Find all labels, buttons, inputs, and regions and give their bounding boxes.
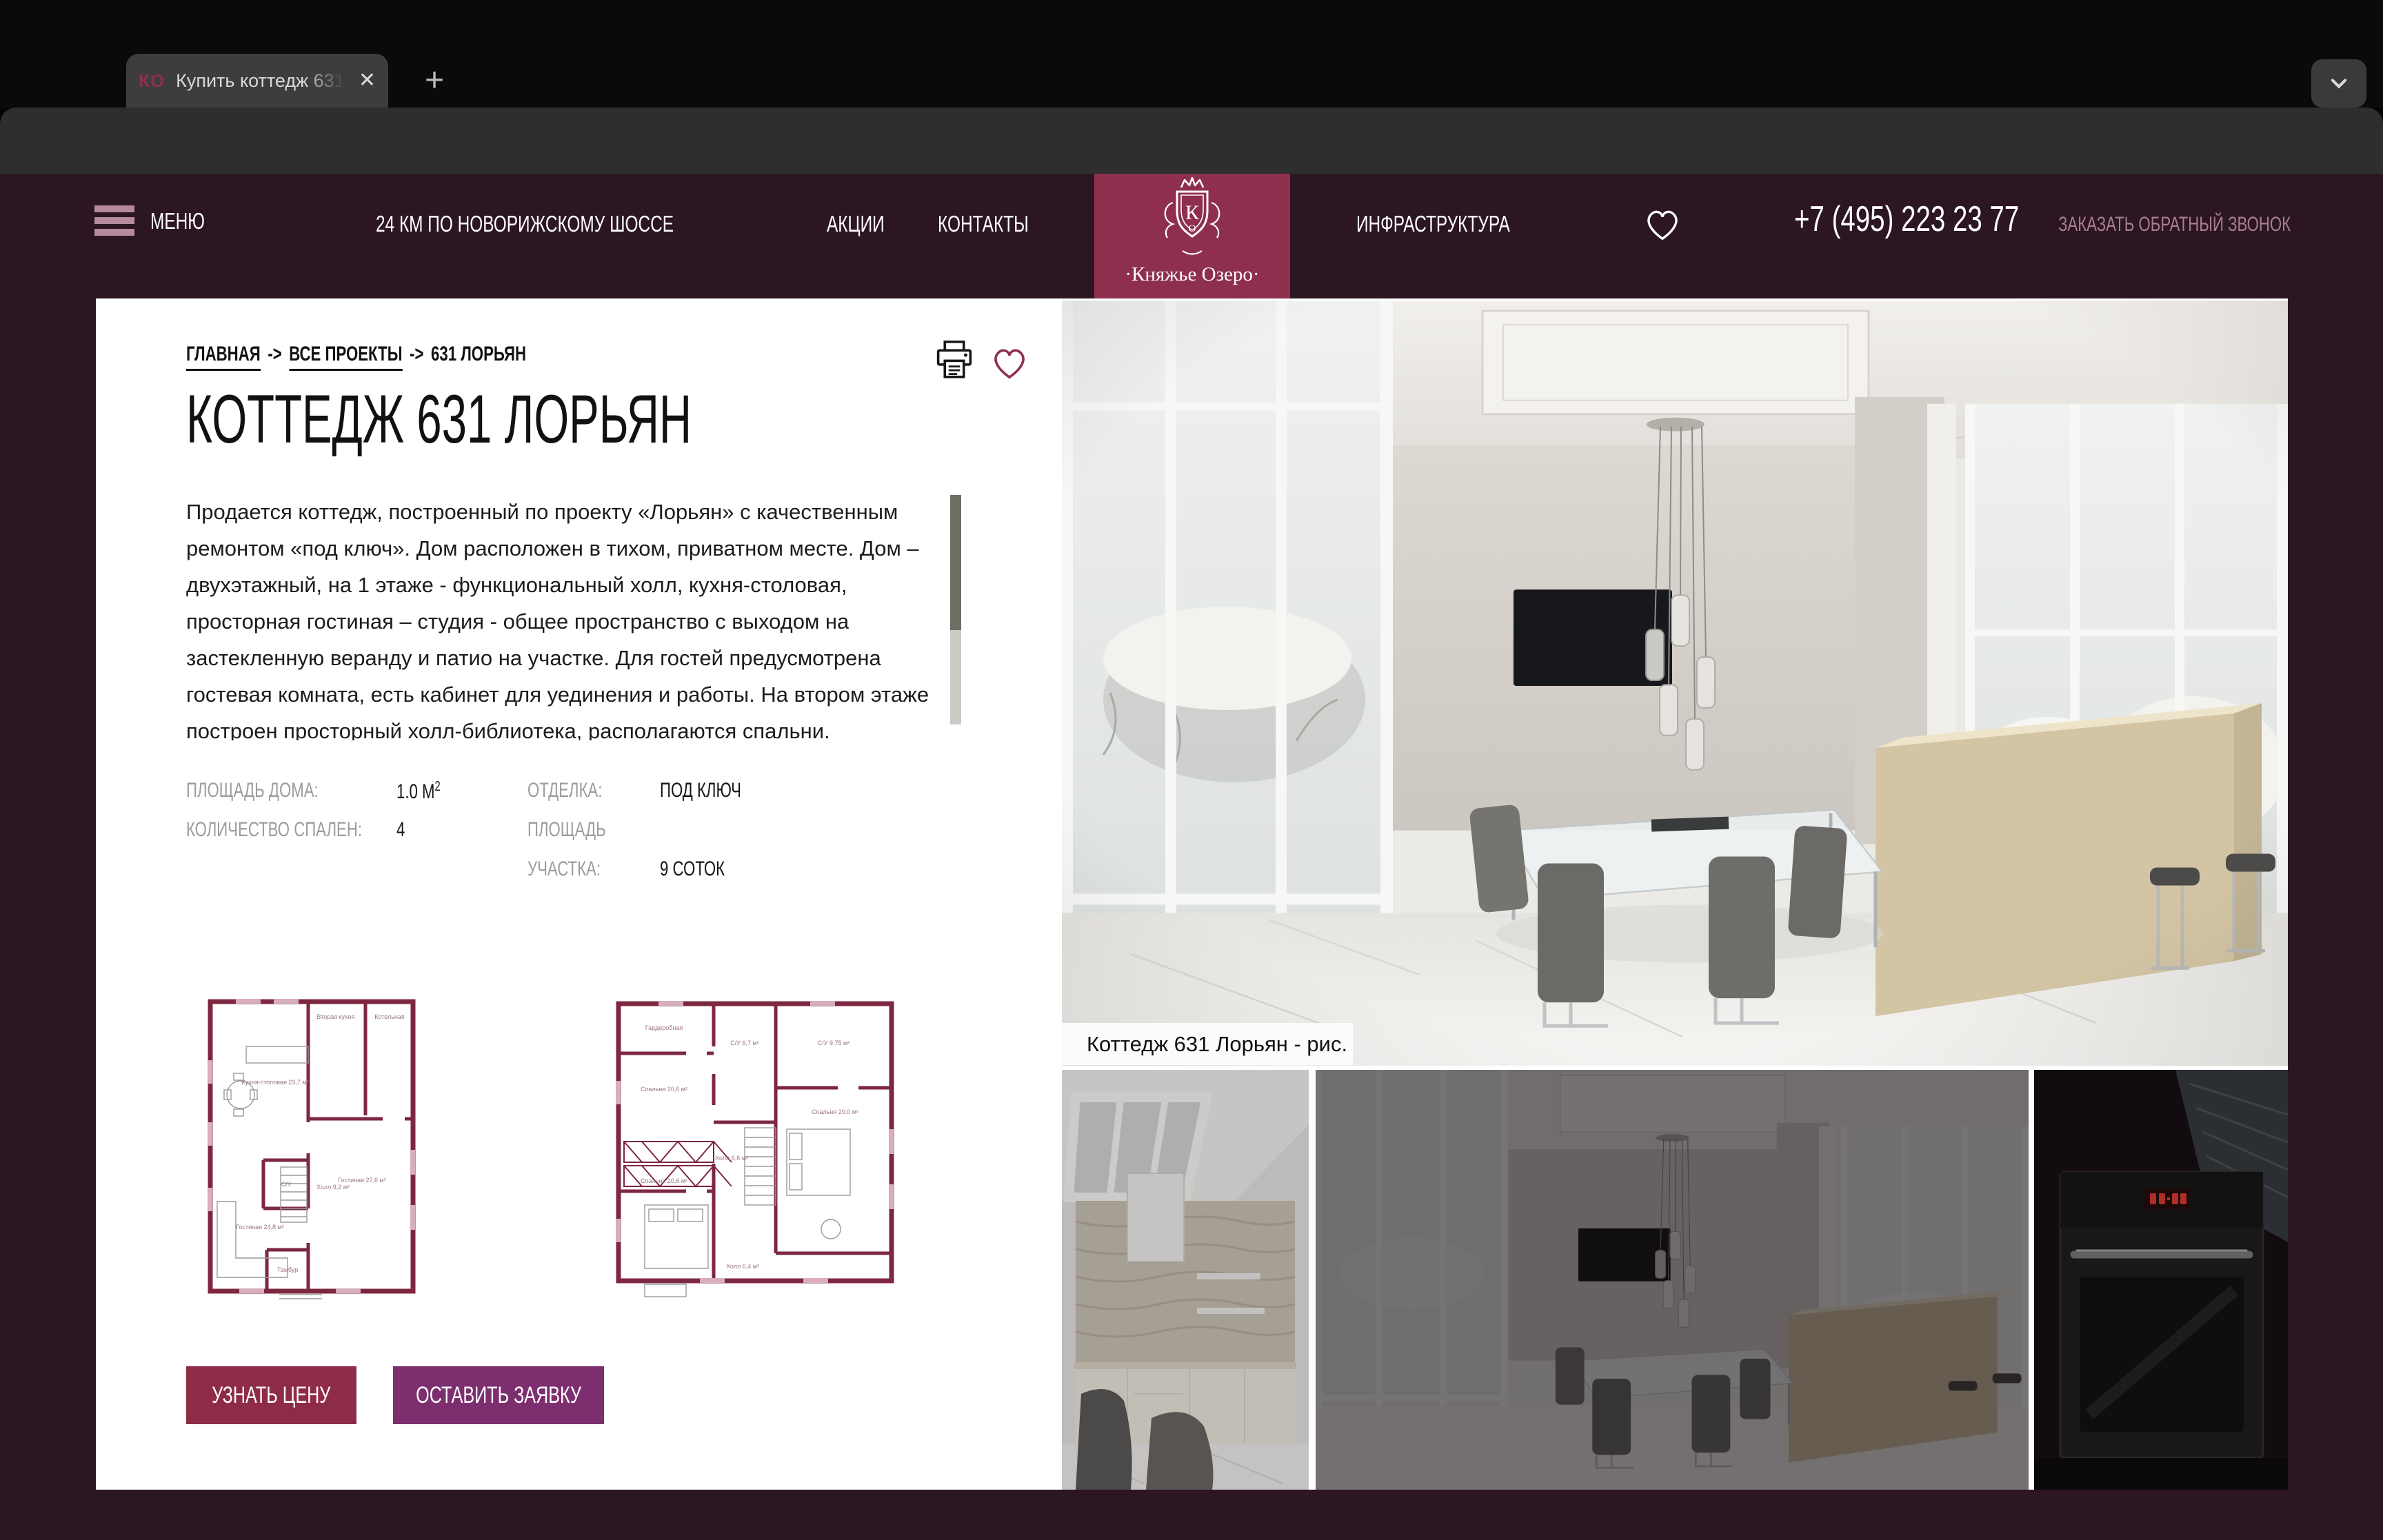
chevron-down-icon: [2324, 68, 2354, 99]
spec-area-label: ПЛОЩАДЬ ДОМА:: [186, 779, 365, 802]
svg-text:С/У 6,7 м²: С/У 6,7 м²: [730, 1040, 758, 1046]
leave-request-button[interactable]: ОСТАВИТЬ ЗАЯВКУ: [393, 1366, 604, 1424]
spec-bedrooms-label: КОЛИЧЕСТВО СПАЛЕН:: [186, 818, 424, 842]
get-price-button[interactable]: УЗНАТЬ ЦЕНУ: [186, 1366, 356, 1424]
site-logo[interactable]: К О ·Княжье Озеро·: [1094, 174, 1290, 302]
floor-plan-1[interactable]: Вторая кухня Котельная Кухня-столовая 23…: [198, 981, 425, 1302]
breadcrumb-current: 631 ЛОРЬЯН: [431, 343, 526, 365]
print-icon[interactable]: [932, 337, 977, 383]
svg-text:Гостиная 24,8 м²: Гостиная 24,8 м²: [236, 1224, 283, 1230]
svg-text:О: О: [1189, 223, 1196, 234]
svg-text:Спальня 20,0 м²: Спальня 20,0 м²: [812, 1108, 858, 1115]
svg-text:Холл 6,6 м²: Холл 6,6 м²: [715, 1155, 748, 1162]
distance-label: 24 КМ ПО НОВОРИЖСКОМУ ШОССЕ: [376, 211, 778, 237]
tab-close-icon[interactable]: ✕: [359, 70, 376, 91]
svg-text:Котельная: Котельная: [374, 1013, 405, 1020]
photo-caption: Коттедж 631 Лорьян - рис. 19: [1062, 1023, 1353, 1065]
svg-text:Гостиная 27,6 м²: Гостиная 27,6 м²: [338, 1177, 385, 1184]
menu-hamburger-icon[interactable]: [94, 205, 134, 236]
menu-button[interactable]: МЕНЮ: [150, 208, 224, 234]
logo-name: ·Княжье Озеро·: [1125, 263, 1259, 286]
breadcrumb: ГЛАВНАЯ -> ВСЕ ПРОЕКТЫ -> 631 ЛОРЬЯН: [186, 343, 645, 366]
floor-plan-2[interactable]: Гардеробная С/У 6,7 м² С/У 9,75 м² Спаль…: [603, 957, 908, 1313]
svg-text:С/У 9,75 м²: С/У 9,75 м²: [818, 1040, 849, 1046]
gallery-thumb-oven[interactable]: [2034, 1070, 2288, 1490]
page-title: КОТТЕДЖ 631 ЛОРЬЯН: [186, 380, 952, 458]
favorites-heart-icon[interactable]: [1641, 203, 1684, 243]
header-phone[interactable]: +7 (495) 223 23 77: [1794, 199, 2098, 240]
svg-text:Спальня 20,6 м²: Спальня 20,6 м²: [641, 1086, 687, 1093]
breadcrumb-home[interactable]: ГЛАВНАЯ: [186, 343, 261, 371]
svg-text:Холл 9,2 м²: Холл 9,2 м²: [316, 1184, 350, 1191]
gallery-thumb-kitchen[interactable]: [1062, 1070, 1309, 1490]
tab-search-button[interactable]: [2311, 59, 2366, 108]
new-tab-button[interactable]: +: [412, 58, 456, 102]
thumb-dim-overlay: [2034, 1070, 2288, 1490]
browser-tab[interactable]: КО Купить коттедж 631 Лорьян ✕: [126, 54, 388, 108]
spec-plot-label-line2: УЧАСТКА:: [527, 858, 626, 881]
main-photo[interactable]: [1062, 301, 2288, 1066]
nav-infrastructure[interactable]: ИНФРАСТРУКТУРА: [1356, 211, 1564, 237]
scrollbar-thumb[interactable]: [950, 495, 961, 630]
breadcrumb-separator: ->: [407, 343, 427, 365]
spec-area-value: 1.0 М2: [396, 779, 456, 804]
add-favorite-heart-icon[interactable]: [988, 341, 1031, 381]
spec-plot-label-line1: ПЛОЩАДЬ: [527, 818, 634, 842]
breadcrumb-separator: ->: [265, 343, 285, 365]
svg-text:Вторая кухня: Вторая кухня: [317, 1013, 355, 1020]
breadcrumb-projects[interactable]: ВСЕ ПРОЕКТЫ: [289, 343, 402, 371]
spec-finish-value: ПОД КЛЮЧ: [660, 779, 770, 802]
svg-text:Гардеробная: Гардеробная: [645, 1024, 683, 1031]
tab-title-wrap: Купить коттедж 631 Лорьян: [176, 67, 344, 94]
tab-title-fade: [303, 67, 344, 94]
description-text[interactable]: Продается коттедж, построенный по проект…: [186, 494, 940, 740]
content-card: ГЛАВНАЯ -> ВСЕ ПРОЕКТЫ -> 631 ЛОРЬЯН КОТ…: [96, 298, 2288, 1490]
thumb-dim-overlay: [1062, 1070, 1309, 1490]
svg-text:Тамбур: Тамбур: [277, 1266, 299, 1273]
browser-toolbar: https://www.kn-ozero.ru/projects/108/: [0, 108, 2383, 174]
callback-link[interactable]: ЗАКАЗАТЬ ОБРАТНЫЙ ЗВОНОК: [2058, 213, 2373, 236]
svg-text:Холл 6,4 м²: Холл 6,4 м²: [726, 1263, 759, 1270]
site-favicon: КО: [139, 70, 165, 92]
spec-finish-label: ОТДЕЛКА:: [527, 779, 629, 802]
crest-icon: К О: [1151, 174, 1234, 262]
svg-text:Кухня-столовая 23,7 м²: Кухня-столовая 23,7 м²: [241, 1079, 308, 1086]
spec-bedrooms-value: 4: [396, 818, 408, 842]
tab-strip: КО Купить коттедж 631 Лорьян ✕ +: [0, 0, 2383, 108]
svg-text:К: К: [1185, 201, 1200, 224]
svg-text:С/У: С/У: [281, 1181, 292, 1188]
description-scrollbar[interactable]: [950, 495, 961, 725]
nav-promotions[interactable]: АКЦИИ: [827, 211, 905, 237]
nav-contacts[interactable]: КОНТАКТЫ: [938, 211, 1060, 237]
spec-plot-value: 9 СОТОК: [660, 858, 747, 881]
browser-window: КО Купить коттедж 631 Лорьян ✕ +: [0, 0, 2383, 1540]
svg-text:Спальня 20,6 м²: Спальня 20,6 м²: [641, 1177, 687, 1184]
thumb-dim-overlay: [1316, 1070, 2029, 1490]
page-background: МЕНЮ 24 КМ ПО НОВОРИЖСКОМУ ШОССЕ АКЦИИ К…: [0, 174, 2383, 1540]
gallery-thumb-interior[interactable]: [1316, 1070, 2029, 1490]
